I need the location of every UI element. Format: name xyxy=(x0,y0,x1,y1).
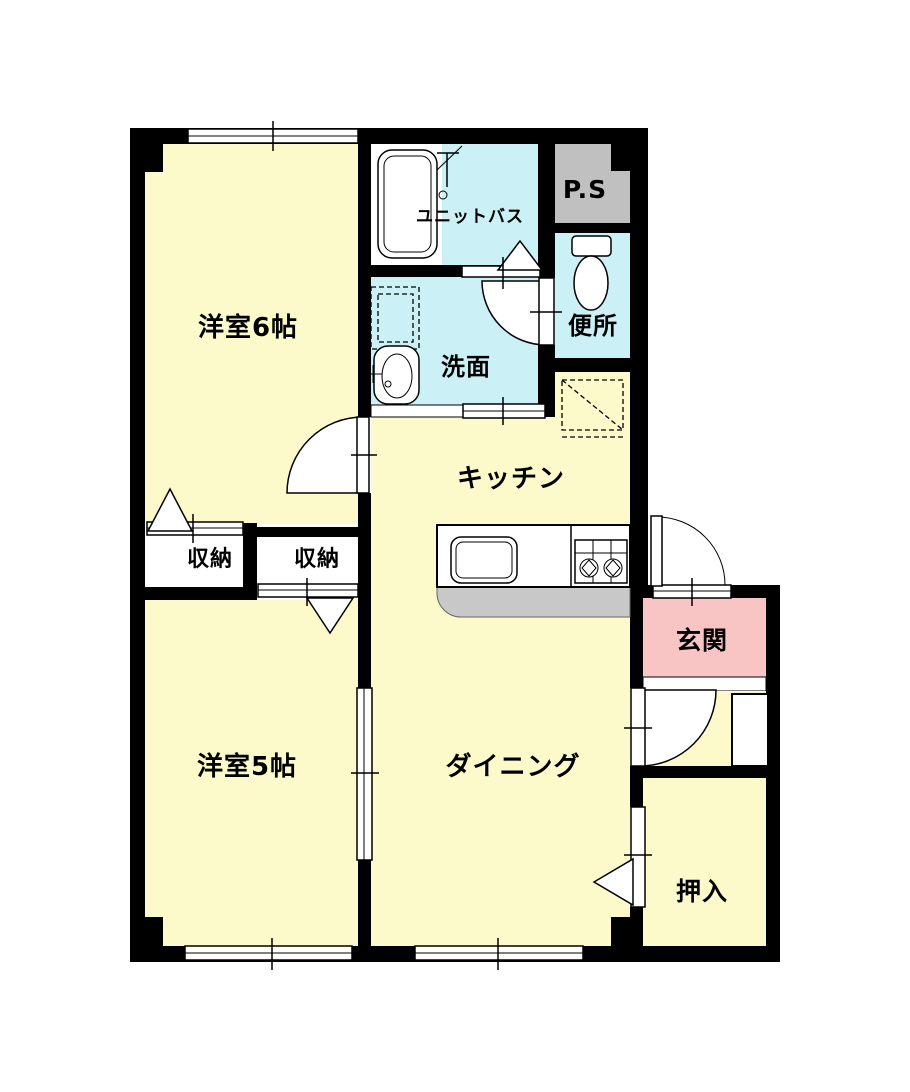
wall-corner-notch xyxy=(145,917,163,946)
label-toilet: 便所 xyxy=(568,312,618,340)
label-western-room-6: 洋室6帖 xyxy=(198,312,298,343)
kitchen-counter xyxy=(437,525,630,617)
door-leaf-hall xyxy=(631,688,645,766)
door-swing-entrance xyxy=(657,517,725,585)
oshiire-closet-floor xyxy=(643,778,766,946)
wall-segment xyxy=(358,860,371,946)
wall-segment xyxy=(243,527,370,537)
wall-corner-notch xyxy=(145,144,163,172)
wall-segment xyxy=(630,766,768,778)
counter-base xyxy=(437,587,630,617)
entrance-step xyxy=(643,677,766,691)
wall-segment xyxy=(145,587,257,600)
wall-segment xyxy=(630,907,643,946)
floor-plan: 洋室6帖 洋室5帖 キッチン ダイニング 玄関 押入 収納 収納 洗面 便所 ユ… xyxy=(0,0,910,1092)
wall-segment xyxy=(358,144,371,417)
label-pipe-space: P.S xyxy=(563,175,607,204)
wall-segment xyxy=(538,144,555,278)
label-unit-bath: ユニットバス xyxy=(416,207,524,227)
floor-plan-drawing: 洋室6帖 洋室5帖 キッチン ダイニング 玄関 押入 収納 収納 洗面 便所 ユ… xyxy=(0,0,910,1092)
shoe-cabinet xyxy=(732,694,768,766)
toilet-icon xyxy=(572,236,611,310)
label-dining: ダイニング xyxy=(445,751,580,782)
label-entrance: 玄関 xyxy=(676,626,728,655)
label-storage-right: 収納 xyxy=(294,546,340,572)
label-storage-left: 収納 xyxy=(187,546,233,572)
wall-corner-notch xyxy=(611,143,632,171)
wall-segment xyxy=(630,598,643,688)
wall-segment xyxy=(538,358,632,372)
door-leaf-entrance xyxy=(651,516,662,586)
label-washroom: 洗面 xyxy=(441,353,491,381)
wall-segment xyxy=(630,128,648,598)
wall-segment xyxy=(130,128,145,962)
label-western-room-5: 洋室5帖 xyxy=(197,751,297,782)
wall-segment xyxy=(538,223,632,233)
wall-segment xyxy=(766,585,780,962)
wall-segment xyxy=(358,537,371,688)
label-oshiire-closet: 押入 xyxy=(676,877,728,906)
washroom-open-boundary xyxy=(371,405,463,417)
label-kitchen: キッチン xyxy=(457,464,565,494)
